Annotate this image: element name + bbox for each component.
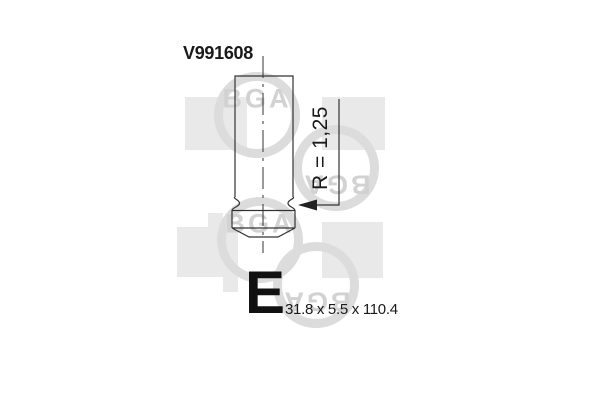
valve-stem-outline — [235, 76, 293, 197]
part-number: V991608 — [183, 43, 253, 64]
valve-technical-drawing — [0, 0, 600, 400]
radius-dimension-label: R = 1,25 — [309, 106, 333, 190]
valve-neck-left — [232, 197, 240, 211]
catalog-image: BGA BGA BGA BGA V991608 R = 1,25 E 31.8 … — [0, 0, 600, 400]
dimensions-label: 31.8 x 5.5 x 110.4 — [285, 301, 398, 318]
size-class-letter: E — [245, 263, 285, 323]
dimension-arrow-icon — [298, 200, 317, 211]
valve-neck-right — [288, 197, 295, 211]
